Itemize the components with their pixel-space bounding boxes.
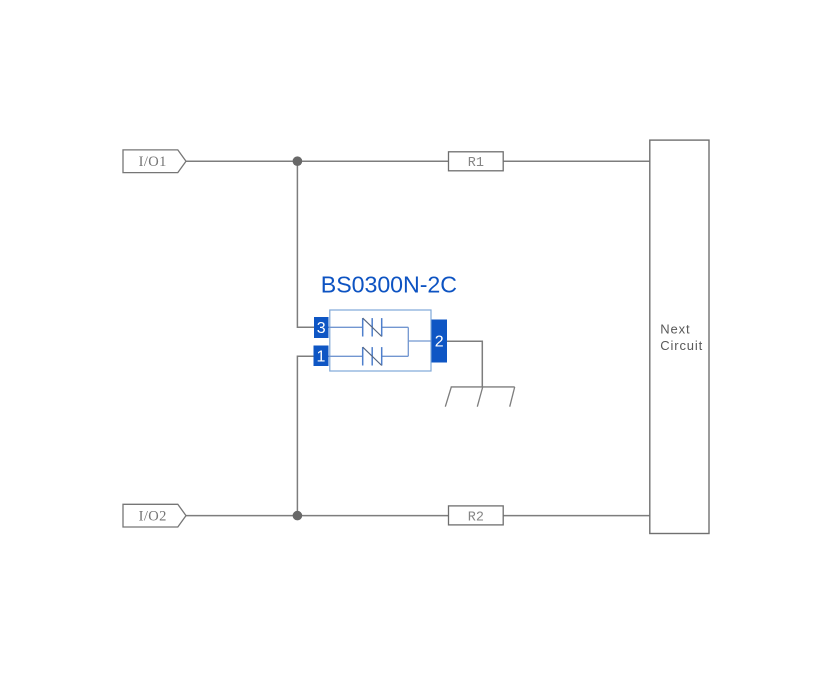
svg-text:3: 3 [317, 320, 326, 337]
svg-text:Next: Next [660, 322, 690, 337]
svg-text:2: 2 [435, 334, 444, 351]
svg-text:I/O1: I/O1 [139, 154, 167, 170]
svg-text:R1: R1 [468, 156, 484, 171]
svg-text:BS0300N-2C: BS0300N-2C [321, 272, 457, 298]
svg-text:I/O2: I/O2 [139, 508, 167, 524]
svg-text:Circuit: Circuit [660, 338, 703, 353]
svg-text:1: 1 [317, 348, 326, 365]
svg-text:R2: R2 [468, 510, 484, 525]
